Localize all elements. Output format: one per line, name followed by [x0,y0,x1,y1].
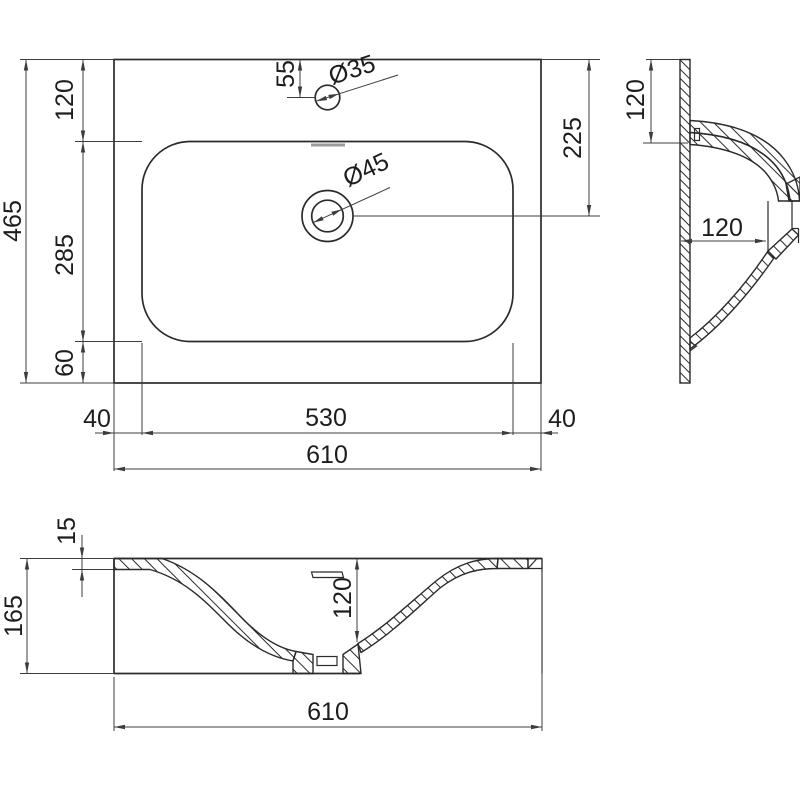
dim-front-overall-height: 165 [0,559,29,674]
dim-side-drain-inset: 120 [681,214,766,243]
dim-faucet-offset: 55 [272,60,302,98]
dim-plan-vertical-chain: 120 285 60 [51,60,85,384]
dim-label-40-right: 40 [548,405,576,433]
side-bowl-underside [690,251,774,349]
dim-front-basin-depth: 120 [329,559,359,643]
front-bowl-shell-left [114,559,296,662]
dim-front-rim-thickness: 15 [53,517,84,597]
side-rim-inner-shell [690,133,790,202]
side-section-view: 120 120 [622,60,800,384]
dim-label-drain-dia: Ø45 [339,147,394,192]
dim-plan-total-height: 465 [0,60,28,384]
dim-label-610-plan: 610 [306,441,348,469]
dim-label-15: 15 [53,517,81,545]
dim-label-120-top: 120 [51,79,79,121]
leader-faucet-diameter: Ø35 [316,49,398,101]
front-overflow-slot [312,572,344,578]
dim-label-55: 55 [272,60,300,88]
dim-label-225: 225 [559,117,587,159]
dim-side-ledge-height: 120 [622,60,688,144]
side-drain-boss [768,201,799,259]
dim-label-530: 530 [305,404,347,432]
side-back-wall [680,60,690,384]
plan-outer-outline [114,60,541,384]
dim-front-overall-width: 610 [114,698,542,729]
front-drain-wall-left [293,652,313,674]
plan-view: 465 120 285 60 55 Ø35 [0,49,600,471]
dim-label-120-side-horiz: 120 [701,214,743,242]
dim-label-610-front: 610 [307,698,349,726]
dim-label-60: 60 [51,349,79,377]
front-drain-wall-right [343,644,361,674]
dim-plan-total-width: 610 [114,441,541,471]
dim-label-465: 465 [0,200,27,242]
dim-drain-from-top: 225 [559,60,591,217]
technical-drawing-page: 465 120 285 60 55 Ø35 [0,0,800,800]
dim-label-faucet-dia: Ø35 [325,49,379,90]
dim-plan-bottom-chain: 40 530 40 [83,404,576,435]
dim-label-285: 285 [51,234,79,276]
front-section-view: 15 165 120 610 [0,517,542,731]
front-drain-outlet [317,657,337,666]
dim-label-120-front: 120 [329,577,357,619]
dim-label-165: 165 [0,595,28,637]
front-rim-end-chamfer [528,559,537,569]
front-rim-strip-right [497,559,528,569]
front-bowl-shell-right [358,559,498,653]
dim-label-40-left: 40 [83,405,111,433]
front-extension-lines [20,559,542,732]
dim-label-120-side-vert: 120 [622,79,650,121]
washbasin-dimension-drawing: 465 120 285 60 55 Ø35 [0,0,800,800]
